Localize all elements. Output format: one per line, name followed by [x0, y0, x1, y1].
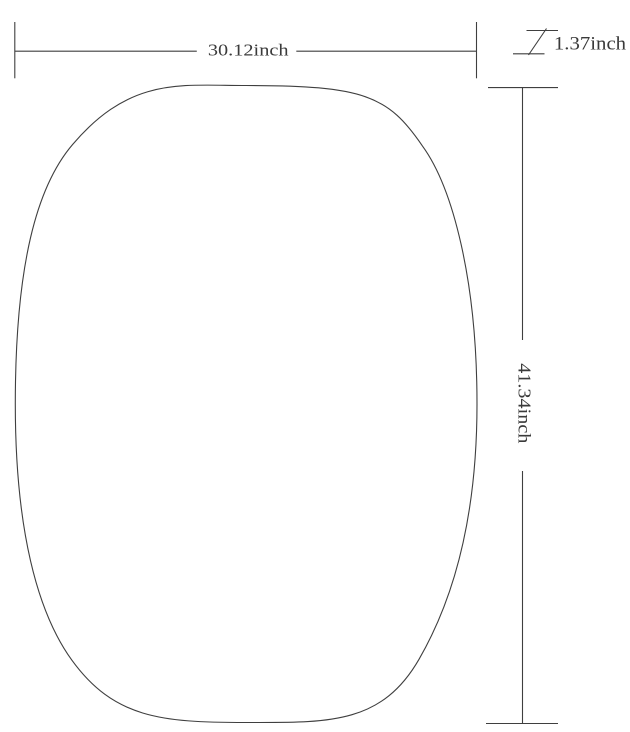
svg-text:1.37inch: 1.37inch	[554, 35, 626, 55]
svg-text:41.34inch: 41.34inch	[515, 363, 535, 443]
svg-text:30.12inch: 30.12inch	[208, 41, 289, 60]
